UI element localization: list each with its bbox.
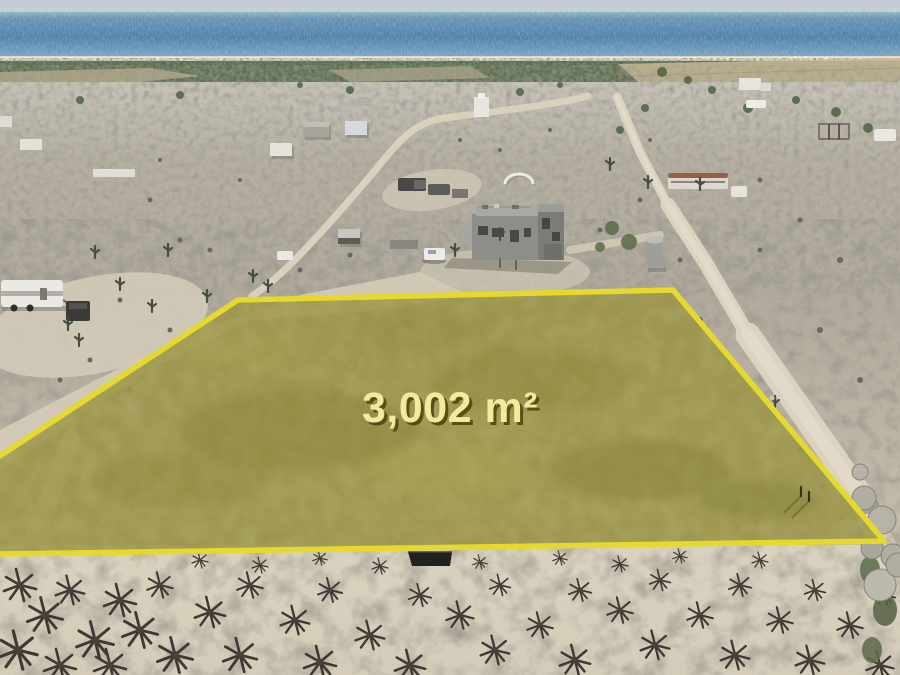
junk-pile — [390, 240, 418, 249]
house — [345, 121, 369, 138]
trailer — [746, 100, 766, 108]
white-wall — [93, 169, 135, 177]
trailer — [874, 129, 896, 141]
trailer-small — [452, 189, 468, 198]
screenshot-root: 3,002 m² 3,002 m² — [0, 0, 900, 675]
house — [303, 122, 331, 140]
car-white-road — [277, 251, 293, 260]
aerial-photo: 3,002 m² 3,002 m² — [0, 0, 900, 675]
car-gray — [428, 184, 450, 195]
house — [270, 143, 294, 159]
shed — [338, 229, 362, 247]
pergola-frame — [819, 124, 849, 139]
dark-structure — [408, 552, 452, 566]
car-white — [422, 248, 446, 264]
ocean — [0, 9, 900, 60]
bus — [668, 173, 728, 189]
house — [20, 139, 42, 150]
rv-trailer — [1, 280, 72, 312]
horizon-line — [0, 9, 900, 12]
pickup-dark — [398, 178, 426, 191]
house — [0, 116, 12, 127]
parcel-area-label: 3,002 m² — [362, 384, 538, 432]
van — [731, 186, 747, 197]
suv-dark — [66, 301, 90, 321]
